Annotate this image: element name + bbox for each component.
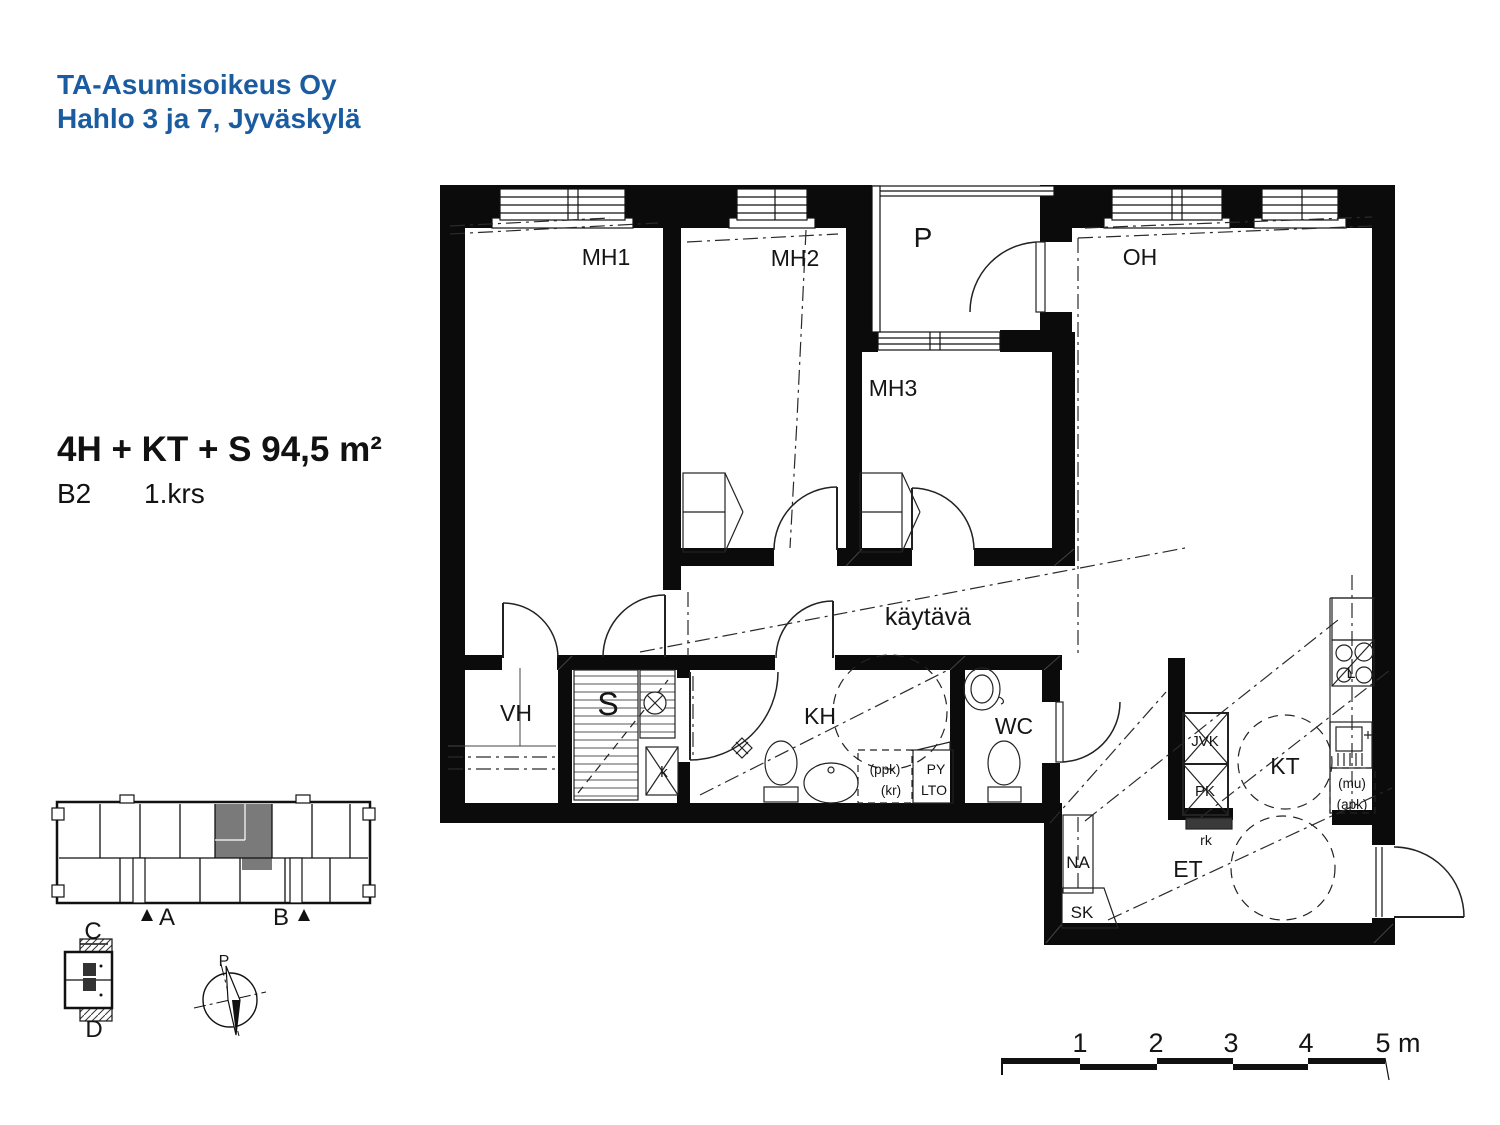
toilet-kh (764, 741, 798, 802)
label-p: P (914, 222, 933, 253)
label-et: ET (1173, 856, 1202, 882)
window-oh-1 (1104, 189, 1230, 228)
window-mh1 (492, 189, 633, 228)
stair-b-label: B (273, 904, 289, 931)
label-mh2: MH2 (771, 245, 820, 271)
scale-3: 3 (1223, 1028, 1238, 1058)
balcony-railing (872, 186, 1054, 332)
floor-plan-svg: MH1 MH2 P MH3 OH käytävä VH S KH WC KT E… (0, 0, 1500, 1125)
compass: P (194, 953, 266, 1036)
building-locator-small (65, 939, 112, 1021)
scale-2: 2 (1148, 1028, 1163, 1058)
et-circle (1231, 816, 1335, 920)
stair-a-label: A (159, 904, 175, 931)
door-mh1 (603, 595, 665, 657)
label-kr: (kr) (881, 783, 901, 798)
door-wc (1056, 702, 1120, 762)
building-locator (52, 795, 375, 903)
label-apk: (apk) (1337, 797, 1368, 812)
door-mh2 (774, 487, 837, 550)
label-kaytava: käytävä (885, 603, 971, 631)
entry-threshold (1376, 847, 1382, 917)
fixture-labels: NA SK JVK PK rk k L (ppk) (kr) PY LTO (m… (660, 665, 1367, 922)
door-vh (503, 603, 558, 658)
label-rk: rk (1200, 832, 1213, 848)
wardrobe-mh2 (683, 473, 743, 552)
door-balcony (970, 242, 1045, 312)
label-py: PY (927, 761, 946, 777)
label-na: NA (1066, 853, 1090, 872)
scale-1: 1 (1072, 1028, 1087, 1058)
stair-a-triangle (141, 909, 153, 921)
compass-north-label: P (219, 953, 230, 970)
label-jvk: JVK (1191, 733, 1219, 750)
label-sk: SK (1071, 903, 1094, 922)
sink-kh (804, 763, 858, 803)
scale-bar: 1 2 3 4 5 m (1001, 1028, 1421, 1080)
label-mh1: MH1 (582, 244, 631, 270)
label-l: L (1347, 665, 1356, 682)
window-p-mh3 (878, 332, 1000, 350)
door-mh3 (912, 488, 974, 550)
toilet-wc (988, 741, 1021, 802)
scale-4: 4 (1298, 1028, 1313, 1058)
stair-b-triangle (298, 909, 310, 921)
locator-highlight-unit (215, 804, 272, 870)
floor-plan-page: TA-Asumisoikeus Oy Hahlo 3 ja 7, Jyväsky… (0, 0, 1500, 1125)
locator-markers: A B C D (80, 904, 310, 1043)
label-s: S (597, 686, 618, 722)
wall-junction-marks (558, 549, 1393, 943)
shower-area (833, 655, 947, 769)
label-vh: VH (500, 700, 532, 726)
label-oh: OH (1123, 244, 1158, 270)
fixtures (574, 473, 1375, 928)
label-ppk: (ppk) (870, 762, 901, 777)
sink-wc (964, 668, 1003, 710)
door-kh (776, 601, 833, 658)
label-wc: WC (995, 713, 1033, 739)
label-mh3: MH3 (869, 375, 918, 401)
kitchen-sink (1330, 722, 1372, 768)
scale-5m: 5 m (1375, 1028, 1420, 1058)
rk-cabinet (1186, 818, 1232, 829)
window-mh2 (729, 189, 815, 228)
label-k: k (660, 764, 668, 781)
label-kh: KH (804, 703, 836, 729)
walls (440, 185, 1395, 945)
label-pk: PK (1195, 783, 1215, 800)
label-kt: KT (1270, 753, 1299, 779)
label-lto: LTO (921, 782, 947, 798)
door-entry (1394, 847, 1464, 917)
window-oh-2 (1254, 189, 1346, 228)
label-mu: (mu) (1338, 776, 1366, 791)
